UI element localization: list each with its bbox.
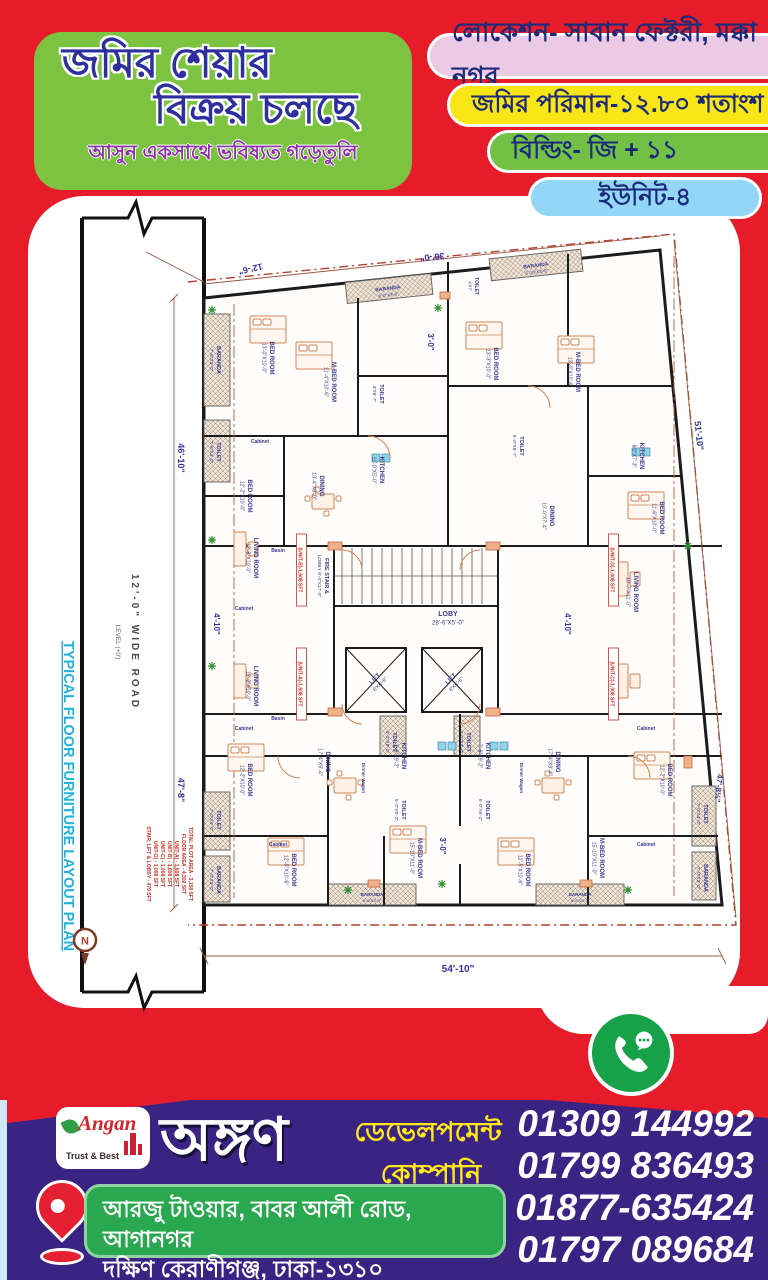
- svg-text:15'-10"X11'-0": 15'-10"X11'-0": [409, 842, 415, 875]
- dimension-label: 46'-10": [176, 443, 186, 472]
- title-subtitle: আসুন একসাথে ভবিষ্যত গড়েতুলি: [34, 138, 412, 171]
- poster-background: জমির শেয়ার বিক্রয় চলছে আসুন একসাথে ভবি…: [0, 0, 768, 1280]
- svg-text:FLOOR AREA - 4,302 SFT: FLOOR AREA - 4,302 SFT: [180, 834, 186, 894]
- phone-number-4: 01797 089684: [515, 1229, 754, 1271]
- room-label: DINING17'-4"X9'-4": [317, 748, 331, 776]
- svg-text:3'-0": 3'-0": [426, 333, 435, 350]
- room-label: KITCHEN7'-6"X9'-2": [477, 743, 491, 770]
- phone-number-3: 01877-635424: [515, 1187, 754, 1229]
- svg-text:BARANDA: BARANDA: [702, 864, 708, 892]
- svg-text:UNIT-C) - 1,008 SFT: UNIT-C) - 1,008 SFT: [159, 841, 165, 887]
- svg-text:FIRE STAIR &: FIRE STAIR &: [323, 558, 329, 594]
- svg-text:Cabinet: Cabinet: [637, 726, 656, 732]
- room-label: DINING17'-4"X9'-4": [547, 748, 561, 776]
- svg-text:Basin: Basin: [271, 548, 285, 554]
- room-label: BED ROOM12'-2"X10'-0": [659, 764, 673, 797]
- svg-text:4'X6'-7": 4'X6'-7": [371, 386, 377, 403]
- room-label: DINING10'-0"X7'-4": [541, 502, 555, 530]
- svg-text:BED ROOM: BED ROOM: [524, 854, 530, 887]
- area-table-line: STAIR, LIFT & LOBBY - 470 SFT: [145, 826, 151, 901]
- svg-text:KITCHEN: KITCHEN: [484, 743, 490, 770]
- room-label: BED ROOM13'-0"X10'-0": [261, 342, 275, 375]
- svg-text:BARANDA: BARANDA: [569, 892, 592, 897]
- svg-text:47'-8": 47'-8": [176, 778, 186, 802]
- svg-text:7'-6"X4'-0": 7'-6"X4'-0": [208, 441, 214, 464]
- room-label: Cabinet: [269, 842, 288, 848]
- svg-text:(UNIT-A)-1,608 SFT: (UNIT-A)-1,608 SFT: [297, 661, 303, 706]
- svg-text:51'-10": 51'-10": [692, 421, 705, 451]
- badge-building: বিল্ডিং- জি + ১১: [487, 130, 768, 173]
- room-label: M-BED ROOM15'-10"X11'-0": [591, 838, 605, 878]
- svg-text:UNIT-D) - 1,008 SFT: UNIT-D) - 1,008 SFT: [152, 841, 158, 887]
- svg-text:15'-10"X11'-0": 15'-10"X11'-0": [591, 842, 597, 875]
- building-outline: [204, 250, 722, 905]
- svg-text:12'-2"X10'-0": 12'-2"X10'-0": [239, 481, 245, 511]
- svg-text:TOILET: TOILET: [378, 384, 384, 404]
- svg-text:46'-10": 46'-10": [176, 443, 186, 472]
- svg-text:36'-0": 36'-0": [420, 251, 445, 263]
- svg-text:4'X7': 4'X7': [468, 281, 473, 291]
- dimension-label: 54'-10": [442, 964, 475, 975]
- badge-location: লোকেশন- সাবান ফেক্টরী, মক্কা নগর: [427, 33, 768, 79]
- dimension-label: 51'-10": [692, 421, 705, 451]
- svg-text:12'-2"X10'-0": 12'-2"X10'-0": [659, 765, 665, 795]
- svg-text:BED ROOM: BED ROOM: [658, 502, 664, 535]
- room-label: M-BED ROOM15'-10"X11'-0": [409, 838, 423, 878]
- svg-text:17'-4"X9'-4": 17'-4"X9'-4": [317, 748, 323, 776]
- badge-land-area: জমির পরিমান-১২.৮০ শতাংশ: [447, 83, 768, 127]
- svg-text:(UNIT-B)-1,608 SFT: (UNIT-B)-1,608 SFT: [297, 547, 303, 592]
- svg-text:BARANDA: BARANDA: [361, 892, 384, 897]
- svg-text:8'-0"X3'-0": 8'-0"X3'-0": [363, 898, 382, 903]
- room-label: Cabinet: [637, 842, 656, 848]
- company-logo-card: Angan Trust & Best: [56, 1107, 150, 1169]
- phone-number-1: 01309 144992: [515, 1103, 754, 1145]
- area-table-line: FLOOR AREA - 4,302 SFT: [180, 834, 186, 894]
- svg-text:28'-6"X5'-0": 28'-6"X5'-0": [432, 620, 464, 627]
- area-table-line: TOTAL PLOT AREA - 3,158 SFT: [187, 827, 193, 901]
- svg-text:10'-7"X11'-0": 10'-7"X11'-0": [625, 577, 631, 607]
- svg-text:DINING: DINING: [554, 752, 560, 773]
- dimension-label: 47'-8½": [713, 774, 725, 803]
- road-level-label: LEVEL (+0'): [114, 625, 121, 660]
- dimension-label: 47'-8": [176, 778, 186, 802]
- area-table-line: UNIT-A) - 1,608 SFT: [173, 841, 179, 887]
- room-label: M-BED ROOM11'-4"X10'-6": [323, 362, 337, 402]
- address-line-1: আরজু টাওয়ার, বাবর আলী রোড, আগানগর: [103, 1194, 503, 1254]
- svg-text:54'-10": 54'-10": [442, 964, 475, 975]
- room-label: DINING13'-4"X8'-0": [311, 472, 325, 500]
- svg-text:BED ROOM: BED ROOM: [246, 480, 252, 513]
- svg-text:KITCHEN: KITCHEN: [400, 743, 406, 770]
- banner-left-stripe: [0, 1100, 7, 1280]
- title-line-1: জমির শেয়ার: [62, 40, 412, 86]
- svg-text:13'-3"X10'-0": 13'-3"X10'-0": [485, 349, 491, 379]
- svg-text:BARANDA: BARANDA: [215, 346, 221, 374]
- svg-text:M-BED ROOM: M-BED ROOM: [330, 362, 336, 402]
- room-label: BED ROOM12'-5"X10'-6": [283, 854, 297, 887]
- room-label: LIVING ROOM12'-8"X10'-0": [245, 538, 259, 578]
- svg-text:(UNIT-C)-1,008 SFT: (UNIT-C)-1,008 SFT: [609, 661, 615, 706]
- unit-area-tag: (UNIT-A)-1,608 SFT: [297, 648, 307, 720]
- svg-text:TOILET: TOILET: [473, 277, 479, 295]
- svg-text:BED ROOM: BED ROOM: [492, 348, 498, 381]
- room-label: BED ROOM12'-2"X10'-0": [239, 480, 253, 513]
- svg-text:4'-2"X8'-0": 4'-2"X8'-0": [384, 731, 390, 754]
- svg-text:13'-0"X10'-0": 13'-0"X10'-0": [261, 343, 267, 373]
- svg-text:TOILET: TOILET: [702, 804, 708, 824]
- svg-text:LIVING ROOM: LIVING ROOM: [632, 572, 638, 612]
- room-label: Cabinet: [235, 606, 254, 612]
- dimension-label: 36'-0": [420, 251, 445, 263]
- room-label: M-BED ROOM13'-0"X10'-6": [567, 352, 581, 392]
- room-label: Basin: [271, 716, 285, 722]
- svg-text:10'-0"X7'-4": 10'-0"X7'-4": [541, 502, 547, 530]
- svg-text:11'-0"X5'-0": 11'-0"X5'-0": [371, 456, 377, 483]
- svg-text:LOBY: LOBY: [438, 611, 458, 618]
- svg-text:UNIT-B) - 1,608 SFT: UNIT-B) - 1,608 SFT: [166, 841, 172, 887]
- room-label: Cabinet: [235, 726, 254, 732]
- svg-text:LIVING ROOM: LIVING ROOM: [252, 666, 258, 706]
- svg-text:Basin: Basin: [271, 716, 285, 722]
- svg-text:DINING: DINING: [318, 476, 324, 497]
- svg-text:TOILET: TOILET: [400, 800, 406, 820]
- area-table-line: UNIT-C) - 1,008 SFT: [159, 841, 165, 887]
- svg-text:TOILET: TOILET: [518, 436, 524, 456]
- company-name-bengali: অঙ্গণ: [160, 1094, 288, 1194]
- svg-text:7'-0"X4'-0": 7'-0"X4'-0": [208, 809, 214, 832]
- unit-area-tag: (UNIT-D)-1,008 SFT: [609, 534, 619, 606]
- phone-number-2: 01799 836493: [515, 1145, 754, 1187]
- svg-text:8'-0"X3'-0": 8'-0"X3'-0": [571, 898, 590, 903]
- dimension-label: 4'-10": [212, 613, 221, 635]
- svg-text:Cabinet: Cabinet: [251, 439, 270, 445]
- room-label: BED ROOM12'-5"X10'-6": [517, 854, 531, 887]
- area-table-line: UNIT-D) - 1,008 SFT: [152, 841, 158, 887]
- svg-text:17'-4"X9'-4": 17'-4"X9'-4": [547, 748, 553, 776]
- road-label: 12'-0" WIDE ROAD: [129, 574, 140, 710]
- svg-text:7'-6"X3'-0": 7'-6"X3'-0": [208, 349, 214, 372]
- svg-text:11'-4"X10'-6": 11'-4"X10'-6": [323, 367, 329, 397]
- area-table-line: UNIT-B) - 1,608 SFT: [166, 841, 172, 887]
- svg-text:13'-4"X8'-0": 13'-4"X8'-0": [311, 472, 317, 500]
- svg-text:TOTAL PLOT AREA - 3,158 SFT: TOTAL PLOT AREA - 3,158 SFT: [187, 827, 193, 901]
- svg-text:3'-0": 3'-0": [438, 837, 447, 854]
- svg-text:N: N: [81, 936, 89, 948]
- svg-text:M-BED ROOM: M-BED ROOM: [598, 838, 604, 878]
- logo-building-icon: [124, 1133, 142, 1155]
- svg-text:47'-8½": 47'-8½": [713, 774, 725, 803]
- svg-text:BED ROOM: BED ROOM: [268, 342, 274, 375]
- svg-text:LIVING ROOM: LIVING ROOM: [252, 538, 258, 578]
- unit-area-tag: (UNIT-C)-1,008 SFT: [609, 648, 619, 720]
- title-card: জমির শেয়ার বিক্রয় চলছে আসুন একসাথে ভবি…: [34, 32, 412, 190]
- title-line-2: বিক্রয় চলছে: [154, 86, 412, 132]
- phone-handset-icon: [605, 1027, 657, 1079]
- svg-text:KITCHEN: KITCHEN: [378, 457, 384, 484]
- phone-numbers: 01309 144992 01799 836493 01877-635424 0…: [515, 1103, 754, 1271]
- svg-text:11'-6"X10'-0": 11'-6"X10'-0": [651, 503, 657, 533]
- address-line-2: দক্ষিণ কেরাণীগঞ্জ, ঢাকা-১৩১০: [103, 1254, 503, 1280]
- room-label: Cabinet: [251, 439, 270, 445]
- room-label: KITCHEN7'-6"X9'-2": [393, 743, 407, 770]
- svg-text:Dinner Wagon: Dinner Wagon: [361, 763, 366, 794]
- svg-text:12'-5"X10'-6": 12'-5"X10'-6": [517, 855, 523, 885]
- svg-text:M-BED ROOM: M-BED ROOM: [416, 838, 422, 878]
- north-compass-icon: N: [74, 929, 96, 965]
- location-pin-base: [40, 1248, 84, 1265]
- svg-text:TOILET: TOILET: [484, 800, 490, 820]
- room-label: Dinner Wagon: [361, 763, 366, 794]
- room-label: Cabinet: [637, 726, 656, 732]
- svg-text:7'-0"X4'-0": 7'-0"X4'-0": [695, 803, 701, 826]
- svg-text:13'-0"X10'-6": 13'-0"X10'-6": [567, 357, 573, 387]
- room-label: BARANDA8'-0"X3'-0": [569, 892, 592, 903]
- svg-text:7'-0"X3'-0": 7'-0"X3'-0": [695, 867, 701, 890]
- road-label-group: 12'-0" WIDE ROAD LEVEL (+0'): [114, 574, 140, 710]
- room-label: Dinner Wagon: [519, 763, 524, 794]
- svg-text:Cabinet: Cabinet: [235, 606, 254, 612]
- svg-text:4'-10": 4'-10": [563, 613, 572, 635]
- svg-text:6'0"X7'-3": 6'0"X7'-3": [631, 445, 637, 468]
- svg-text:5'-0"X6'-7": 5'-0"X6'-7": [511, 435, 517, 458]
- dimension-label: 3'-0": [426, 333, 435, 350]
- svg-text:12'-2"X10'-0": 12'-2"X10'-0": [245, 671, 251, 701]
- svg-text:4'-10": 4'-10": [212, 613, 221, 635]
- dimension-label: 4'-10": [563, 613, 572, 635]
- svg-text:TOILET: TOILET: [215, 810, 221, 830]
- svg-text:BED ROOM: BED ROOM: [246, 764, 252, 797]
- svg-text:STAIR, LIFT & LOBBY - 470 SFT: STAIR, LIFT & LOBBY - 470 SFT: [145, 826, 151, 901]
- svg-text:DINING: DINING: [324, 752, 330, 773]
- svg-text:Cabinet: Cabinet: [235, 726, 254, 732]
- svg-text:7'-6"X9'-2": 7'-6"X9'-2": [393, 744, 399, 769]
- svg-text:4'-2"X8'-0": 4'-2"X8'-0": [458, 731, 464, 754]
- svg-text:TOILET: TOILET: [465, 732, 471, 752]
- svg-text:M-BED ROOM: M-BED ROOM: [574, 352, 580, 392]
- svg-text:7'-0"X3'-0": 7'-0"X3'-0": [208, 869, 214, 892]
- svg-text:12'-2"X10'-0": 12'-2"X10'-0": [239, 765, 245, 795]
- svg-text:7'-6"X9'-2": 7'-6"X9'-2": [477, 744, 483, 769]
- badge-unit: ইউনিট-৪: [528, 177, 762, 219]
- svg-text:5'-0"X5'-2": 5'-0"X5'-2": [477, 799, 483, 822]
- unit-area-tag: (UNIT-B)-1,608 SFT: [297, 534, 307, 606]
- svg-text:12'-6": 12'-6": [238, 261, 264, 276]
- room-label: LIVING ROOM12'-2"X10'-0": [245, 666, 259, 706]
- svg-text:KITCHEN: KITCHEN: [638, 443, 644, 470]
- svg-text:DINING: DINING: [548, 506, 554, 527]
- room-label: BED ROOM12'-2"X10'-0": [239, 764, 253, 797]
- room-label: KITCHEN6'0"X7'-3": [631, 443, 645, 470]
- company-type-line1: ডেভেলপমেন্ট: [346, 1112, 510, 1157]
- svg-text:TOILET: TOILET: [215, 442, 221, 462]
- svg-text:BED ROOM: BED ROOM: [666, 764, 672, 797]
- address-pill: আরজু টাওয়ার, বাবর আলী রোড, আগানগর দক্ষি…: [84, 1184, 506, 1258]
- svg-text:BARANDA: BARANDA: [215, 866, 221, 894]
- svg-text:UNIT-A) - 1,608 SFT: UNIT-A) - 1,608 SFT: [173, 841, 179, 887]
- room-label: Basin: [271, 548, 285, 554]
- room-label: LIVING ROOM10'-7"X11'-0": [625, 572, 639, 612]
- svg-text:Cabinet: Cabinet: [637, 842, 656, 848]
- dimension-label: 12'-6": [238, 261, 264, 276]
- plan-title: TYPICAL FLOOR FURNITURE LAYOUT PLAN: [60, 641, 76, 951]
- phone-icon: [588, 1010, 674, 1096]
- svg-text:LOBBY 8'-0"X17'-0": LOBBY 8'-0"X17'-0": [316, 555, 322, 598]
- floor-plan-svg: LOBY28'-6"X5'-0"FIRE STAIR &LOBBY 8'-0"X…: [28, 196, 740, 1014]
- svg-text:12'-5"X10'-6": 12'-5"X10'-6": [283, 855, 289, 885]
- room-label: BARANDA8'-0"X3'-0": [361, 892, 384, 903]
- logo-tagline: Trust & Best: [66, 1151, 119, 1161]
- svg-text:12'-8"X10'-0": 12'-8"X10'-0": [245, 543, 251, 573]
- dimension-label: 3'-0": [438, 837, 447, 854]
- svg-text:BED ROOM: BED ROOM: [290, 854, 296, 887]
- svg-text:5'-0"X5'-2": 5'-0"X5'-2": [393, 799, 399, 822]
- room-label: BED ROOM13'-3"X10'-0": [485, 348, 499, 381]
- svg-text:Cabinet: Cabinet: [269, 842, 288, 848]
- svg-text:Dinner Wagon: Dinner Wagon: [519, 763, 524, 794]
- svg-text:(UNIT-D)-1,008 SFT: (UNIT-D)-1,008 SFT: [609, 547, 615, 592]
- room-label: KITCHEN11'-0"X5'-0": [371, 456, 385, 483]
- room-label: BED ROOM11'-6"X10'-0": [651, 502, 665, 535]
